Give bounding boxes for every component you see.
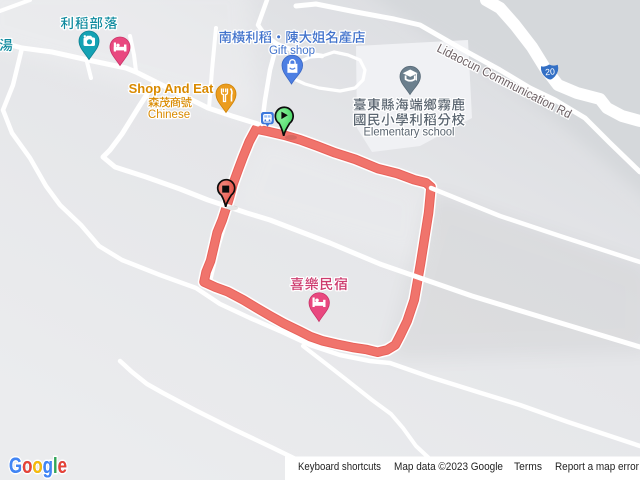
svg-text:20: 20	[545, 66, 556, 77]
svg-text:Keyboard shortcuts: Keyboard shortcuts	[298, 461, 381, 473]
svg-text:Shop And Eat: Shop And Eat	[129, 81, 214, 96]
svg-text:Chinese: Chinese	[148, 109, 190, 121]
svg-text:Google: Google	[9, 453, 67, 478]
svg-text:Map data ©2023 Google: Map data ©2023 Google	[394, 461, 503, 473]
svg-text:Elementary school: Elementary school	[364, 125, 455, 139]
svg-text:Report a map error: Report a map error	[555, 461, 639, 473]
svg-text:Terms: Terms	[514, 461, 542, 473]
